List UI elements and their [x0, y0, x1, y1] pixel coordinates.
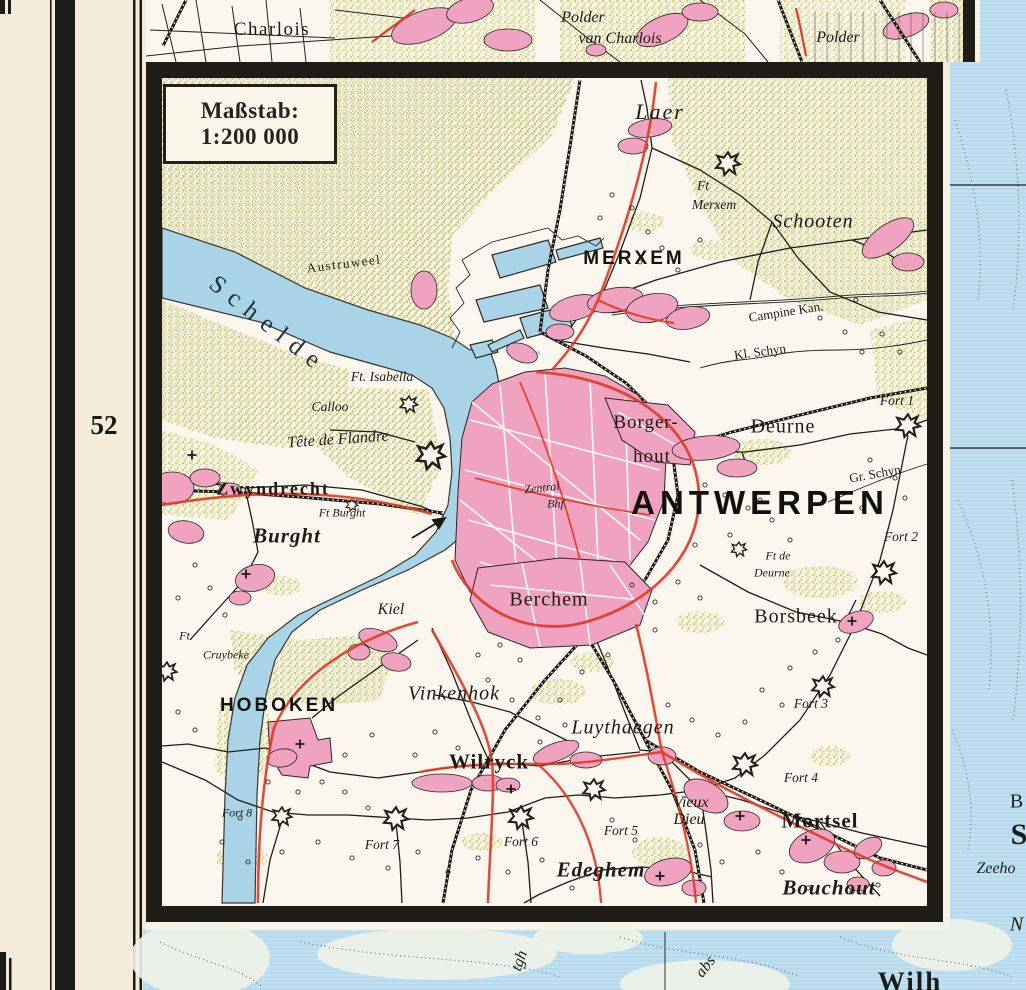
map-artwork	[0, 0, 1026, 990]
atlas-page: CharloisPoldervan CharloisPolderLaerFtMe…	[0, 0, 1026, 990]
sea-right	[943, 62, 1026, 990]
sea-bottom	[130, 919, 1026, 990]
inset-map	[150, 78, 935, 914]
sea-top-right-texture	[980, 0, 1026, 62]
sheet-number-label: 52	[84, 410, 124, 441]
scale-box: Maßstab: 1:200 000	[163, 84, 337, 164]
top-map-margin	[975, 0, 980, 62]
scale-title: Maßstab:	[201, 98, 300, 124]
scale-value: 1:200 000	[201, 124, 299, 150]
top-map-strip	[146, 0, 975, 62]
